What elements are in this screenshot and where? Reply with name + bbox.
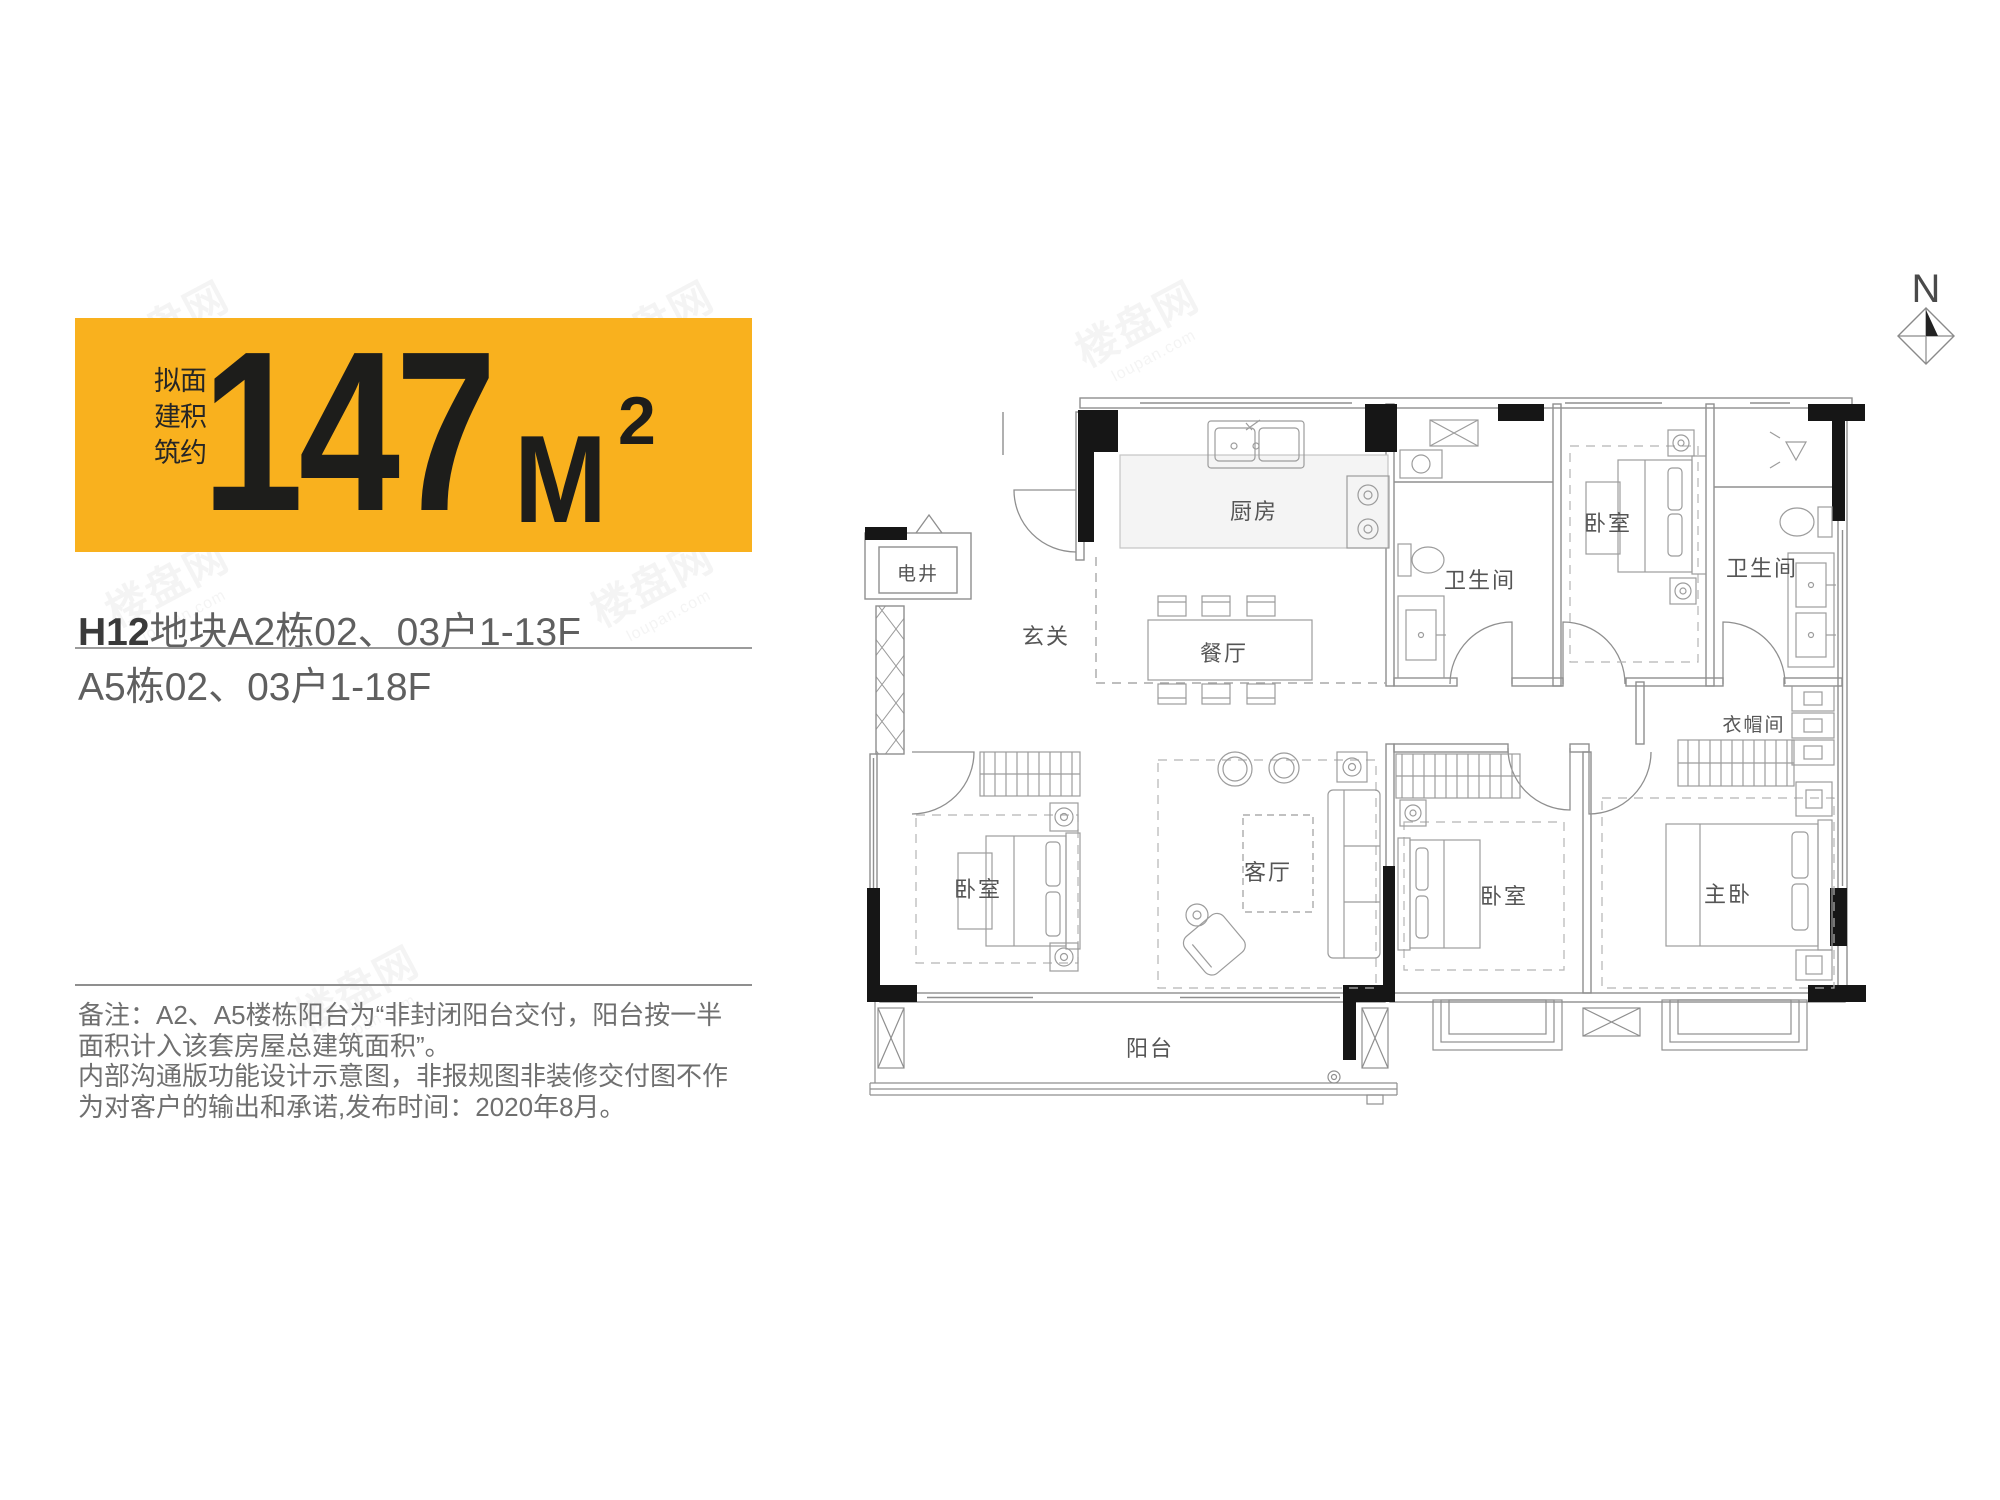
toilet-tank bbox=[1398, 544, 1411, 576]
room-label-bath1: 卫生间 bbox=[1444, 568, 1516, 593]
shaft-door bbox=[916, 515, 942, 533]
bed-top-furniture bbox=[1570, 430, 1706, 662]
shower-drain bbox=[1786, 442, 1806, 460]
nightstand bbox=[1796, 950, 1832, 980]
bed bbox=[1410, 840, 1480, 948]
toilet bbox=[1780, 508, 1814, 536]
toilet-tank bbox=[1818, 507, 1832, 537]
room-label-balcony: 阳台 bbox=[1126, 1036, 1174, 1061]
party-wall-hatch bbox=[876, 606, 904, 754]
armchair bbox=[1180, 910, 1249, 979]
bed-top-door bbox=[1563, 622, 1625, 684]
north-label: N bbox=[1912, 267, 1941, 311]
north-compass: N bbox=[1898, 267, 1954, 364]
floorplan: 电井 玄关 厨房 餐厅 卫生间 卧室 卫生间 衣帽间 卧室 客厅 卧室 主卧 阳… bbox=[0, 0, 2000, 1500]
bed-headboard bbox=[1818, 820, 1832, 950]
nightstand bbox=[1796, 782, 1832, 816]
master-door bbox=[1589, 752, 1651, 814]
room-label-living: 客厅 bbox=[1244, 860, 1292, 885]
room-label-master: 主卧 bbox=[1704, 882, 1752, 907]
bed-mid-furniture bbox=[1396, 754, 1564, 970]
toilet bbox=[1412, 547, 1444, 573]
sofa bbox=[1328, 790, 1380, 958]
bath2-door bbox=[1723, 622, 1785, 684]
kitchen-fixtures bbox=[1120, 420, 1478, 548]
bath1-door bbox=[1450, 622, 1512, 684]
room-label-bed-mid: 卧室 bbox=[1480, 884, 1528, 909]
column-symbol bbox=[1337, 752, 1367, 782]
room-label-closet: 衣帽间 bbox=[1722, 714, 1785, 736]
master-furniture bbox=[1602, 686, 1834, 988]
sink bbox=[1796, 613, 1826, 657]
room-label-canting: 餐厅 bbox=[1200, 641, 1248, 666]
bed-left-furniture bbox=[916, 752, 1080, 971]
bed-left-door bbox=[912, 752, 974, 814]
balcony-structure bbox=[870, 1000, 1807, 1104]
room-label-dianjing: 电井 bbox=[897, 563, 939, 585]
room-label-xuanguan: 玄关 bbox=[1022, 624, 1070, 649]
bath2-fixtures bbox=[1770, 432, 1836, 667]
bed-headboard bbox=[1692, 456, 1706, 574]
washer bbox=[1400, 450, 1442, 478]
sink bbox=[1406, 610, 1436, 660]
room-label-bed-top: 卧室 bbox=[1584, 511, 1632, 536]
entry-door bbox=[1014, 490, 1076, 552]
room-label-chufang: 厨房 bbox=[1230, 499, 1278, 524]
bath1-fixtures bbox=[1398, 544, 1446, 678]
room-label-bath2: 卫生间 bbox=[1726, 556, 1798, 581]
room-label-bed-left: 卧室 bbox=[954, 877, 1002, 902]
sink bbox=[1796, 563, 1826, 607]
